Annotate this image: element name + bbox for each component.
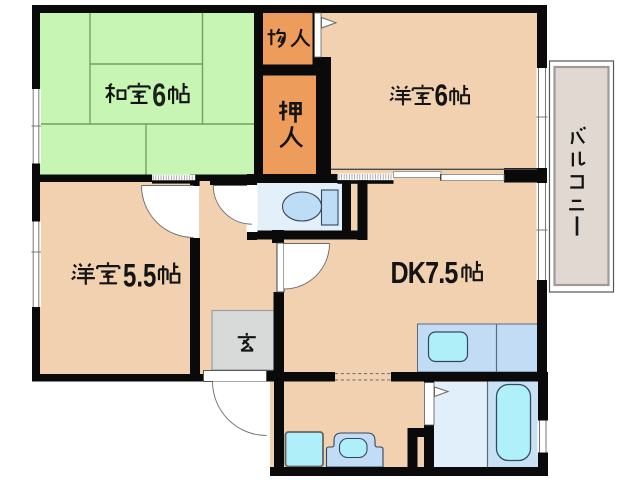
svg-text:DK7.5: DK7.5: [391, 254, 458, 289]
svg-text:5.5: 5.5: [123, 257, 156, 293]
svg-text:6: 6: [152, 78, 166, 114]
svg-text:6: 6: [435, 78, 448, 113]
